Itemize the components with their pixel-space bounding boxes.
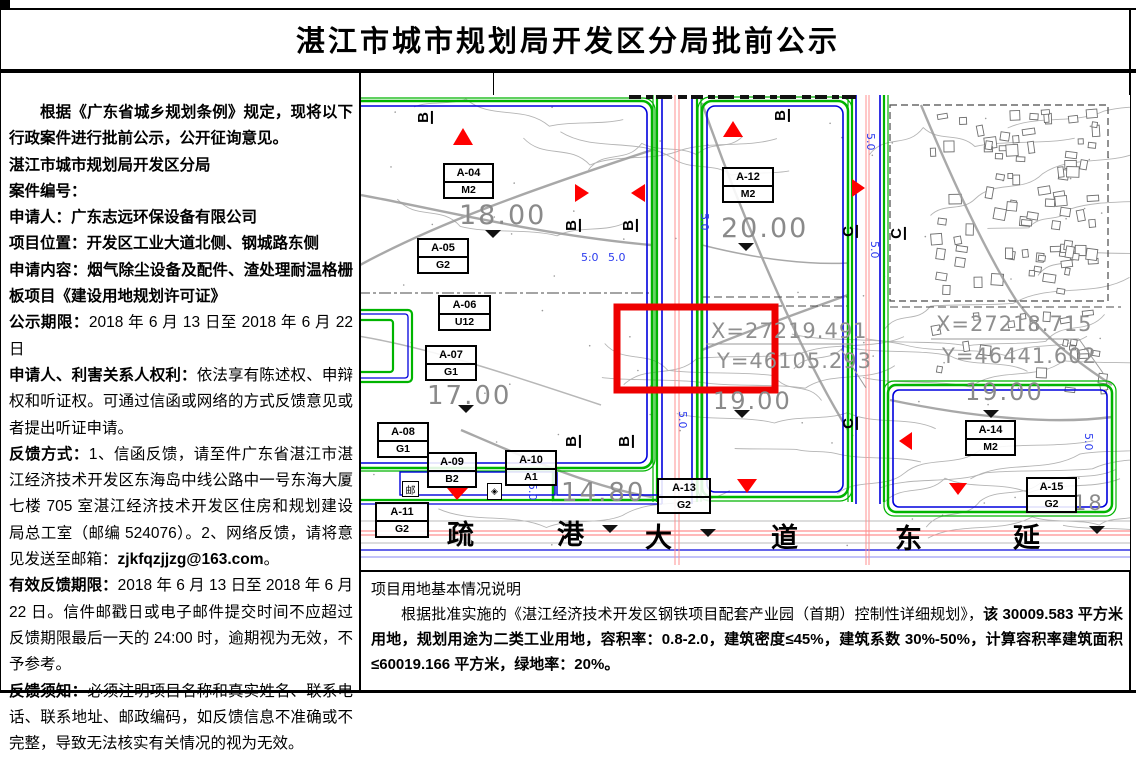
elevation-value-partial: 18	[1073, 491, 1104, 515]
parcel-label: A-07G1	[425, 345, 477, 381]
stop-symbol-b: B	[617, 435, 634, 448]
road-name-char: 大	[645, 516, 672, 555]
landmark-icon: ◈	[487, 483, 502, 500]
border-left	[0, 8, 1, 693]
parcel-label: A-09B2	[427, 452, 477, 488]
notice-bureau: 湛江市城市规划局开发区分局	[9, 153, 353, 179]
planning-map: A-04M2 A-05G2 A-06U12 A-07G1 A-08G1 A-09…	[361, 95, 1130, 570]
dimension-label: 5.0	[864, 133, 877, 151]
notice-location: 项目位置：开发区工业大道北侧、钢城路东侧	[9, 231, 353, 257]
dimension-label: 5.0	[676, 411, 689, 429]
stray-cell-line	[493, 73, 494, 95]
land-info-panel: 项目用地基本情况说明 根据批准实施的《湛江经济技术开发区钢铁项目配套产业园（首期…	[371, 577, 1123, 677]
notice-period: 公示期限：2018 年 6 月 13 日至 2018 年 6 月 22 日	[9, 310, 353, 363]
page-title: 湛江市城市规划局开发区分局批前公示	[0, 10, 1136, 68]
stop-symbol-b: B	[621, 219, 638, 232]
post-office-icon: 邮	[402, 481, 419, 497]
dimension-label: 5.0	[581, 251, 599, 264]
elevation-value: 20.00	[721, 213, 808, 244]
stop-symbol-b: B	[564, 435, 581, 448]
elevation-value: 19.00	[965, 378, 1044, 406]
notice-panel: 根据《广东省城乡规划条例》规定，现将以下行政案件进行批前公示，公开征询意见。 湛…	[9, 100, 353, 757]
dimension-label: 5.0	[698, 213, 711, 231]
parcel-label: A-06U12	[438, 295, 491, 331]
stop-symbol-b: B	[564, 219, 581, 232]
stop-symbol-c: C	[841, 417, 858, 430]
dimension-label: 5.0	[1082, 433, 1095, 451]
notice-valid-period: 有效反馈期限：2018 年 6 月 13 日至 2018 年 6 月 22 日。…	[9, 573, 353, 678]
elevation-value: 17.00	[427, 381, 511, 411]
coordinate-x: X=27218.715	[936, 312, 1093, 336]
stop-symbol-b: B	[773, 109, 790, 122]
land-info-body: 根据批准实施的《湛江经济技术开发区钢铁项目配套产业园（首期）控制性详细规划》，该…	[371, 602, 1123, 677]
dimension-label: 5.0	[868, 241, 881, 259]
elevation-value: 14.80	[561, 478, 645, 508]
parcel-label: A-11G2	[375, 502, 429, 538]
feedback-email: zjkfqzjjzg@163.com	[118, 551, 264, 568]
notice-intro: 根据《广东省城乡规划条例》规定，现将以下行政案件进行批前公示，公开征询意见。	[9, 100, 353, 153]
elevation-value: 19.00	[713, 387, 792, 415]
public-notice-page: { "page": { "title": "湛江市城市规划局开发区分局批前公示"…	[0, 0, 1136, 700]
road-name-char: 疏	[447, 513, 474, 552]
notice-content: 申请内容：烟气除尘设备及配件、渣处理耐温格栅板项目《建设用地规划许可证》	[9, 258, 353, 311]
parcel-label: A-08G1	[377, 422, 429, 458]
parcel-label: A-05G2	[417, 238, 469, 274]
land-info-heading: 项目用地基本情况说明	[371, 577, 1123, 602]
stop-symbol-c: C	[889, 227, 906, 240]
notice-feedback: 反馈方式：1、信函反馈，请至件广东省湛江市湛江经济技术开发区东海岛中线公路中一号…	[9, 442, 353, 573]
parcel-label: A-04M2	[443, 163, 494, 199]
map-info-divider	[359, 570, 1130, 572]
coordinate-y: Y=46441.602	[942, 344, 1097, 368]
elevation-value: 18.00	[459, 200, 546, 231]
stop-symbol-b: B	[416, 111, 433, 124]
notice-case-no: 案件编号：	[9, 179, 353, 205]
coordinate-x: X=27219.491	[711, 319, 868, 343]
parcel-label: A-15G2	[1026, 477, 1077, 513]
road-name-char: 东	[895, 517, 922, 556]
parcel-label: A-12M2	[722, 167, 774, 203]
parcel-label: A-10A1	[505, 450, 557, 486]
coordinate-y: Y=46105.293	[717, 349, 872, 373]
road-name-char: 延	[1013, 516, 1040, 555]
parcel-label: A-13G2	[657, 478, 711, 514]
title-underline	[0, 69, 1136, 73]
road-name-char: 港	[557, 513, 584, 552]
road-name-char: 道	[771, 516, 798, 555]
notice-must-know: 反馈须知：必须注明项目名称和真实姓名、联系电话、联系地址、邮政编码，如反馈信息不…	[9, 679, 353, 757]
stop-symbol-c: C	[841, 225, 858, 238]
parcel-label: A-14M2	[965, 420, 1016, 456]
notice-rights: 申请人、利害关系人权利：依法享有陈述权、申辩权和听证权。可通过信函或网络的方式反…	[9, 363, 353, 442]
notice-applicant: 申请人：广东志远环保设备有限公司	[9, 205, 353, 231]
dimension-label: 5.0	[608, 251, 626, 264]
